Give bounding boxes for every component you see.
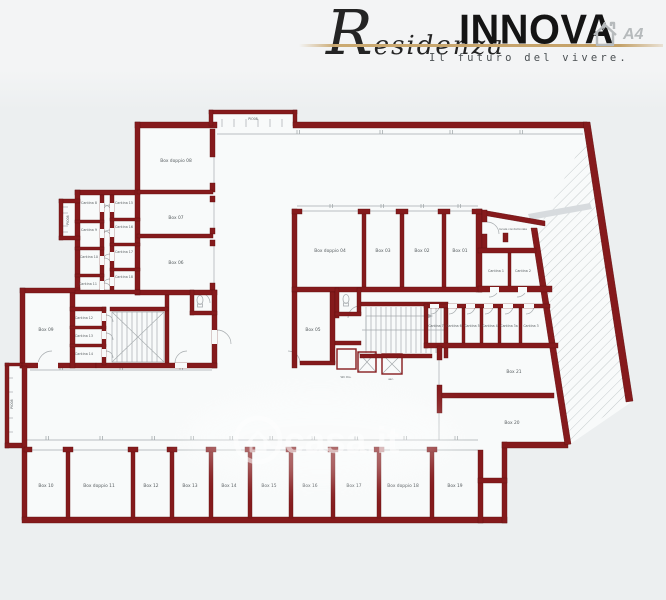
room-label: Cantina 2 (515, 269, 531, 273)
room-label: Cantina 13 (75, 334, 93, 338)
room-label: Box 14 (221, 483, 236, 489)
room-label: Box 07 (168, 215, 183, 221)
room-label: Cantina 11 (79, 282, 97, 286)
room-label: Cantina 8 (81, 201, 97, 205)
room-label: Cantina 17 (115, 250, 133, 254)
room-label: asc. (388, 377, 394, 381)
room-label: Box 02 (414, 248, 429, 254)
room-label: Cantina 14 (75, 352, 93, 356)
room-label: Cantina 3 (523, 324, 538, 328)
room-label: PIO08 (66, 215, 70, 224)
room-label: WC Dis. (341, 375, 352, 379)
room-label: Box 17 (346, 483, 361, 489)
room-label: PIO08 (248, 117, 257, 121)
room-label: Cantina 6 (446, 324, 461, 328)
room-label: Box 15 (261, 483, 276, 489)
room-label: Cantina 15 (115, 201, 133, 205)
room-label: Box doppio 18 (387, 483, 419, 489)
room-label: Box 13 (182, 483, 197, 489)
watermark: casa.it (185, 391, 455, 483)
room-label: Box doppio 11 (83, 483, 115, 489)
room-label: Box 10 (38, 483, 53, 489)
room-label: Box 06 (168, 260, 183, 266)
room-label: Box 16 (302, 483, 317, 489)
room-label: Box 19 (447, 483, 462, 489)
room-label: Box 20 (504, 420, 519, 426)
room-label: Cantina 3a (500, 324, 517, 328)
room-label: Cantina 9 (81, 228, 97, 232)
room-label: Cantina 4 (482, 324, 497, 328)
room-label: Box 03 (375, 248, 390, 254)
room-label: PIO08 (10, 399, 14, 408)
room-label: Box 09 (38, 327, 53, 333)
room-label: locale condominiale (499, 227, 527, 231)
floor-plan: PIO08PIO08PIO08Box doppio 08Box 07Box 06… (0, 0, 666, 600)
room-label: Cantina 7 (428, 324, 443, 328)
room-label: Cantina 12 (75, 316, 93, 320)
room-label: Cantina 18 (115, 275, 133, 279)
room-label: Cantina 1 (488, 269, 504, 273)
room-label: Box 01 (452, 248, 467, 254)
room-label: Box 21 (506, 369, 521, 375)
room-label: Box 12 (143, 483, 158, 489)
room-label: Cantina 10 (80, 255, 98, 259)
room-label: Cantina 5 (464, 324, 479, 328)
room-label: Box 05 (305, 327, 320, 333)
room-label: Box doppio 04 (314, 248, 346, 254)
room-label: Cantina 16 (115, 225, 133, 229)
watermark-text: casa.it (284, 420, 399, 461)
room-label: Box doppio 08 (160, 158, 192, 164)
